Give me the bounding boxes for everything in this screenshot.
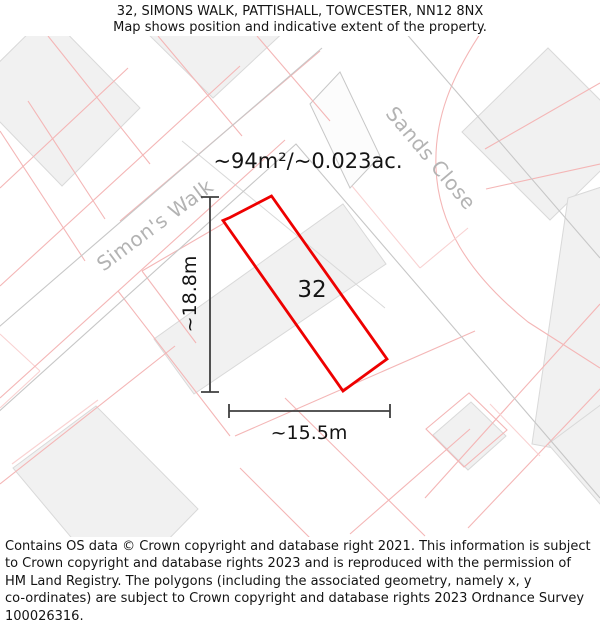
copyright-line: co-ordinates) are subject to Crown copyr… — [5, 590, 597, 607]
width-dimension-label: ~15.5m — [271, 422, 348, 444]
map-canvas: Simon's Walk Sands Close ~94m²/~0.023ac.… — [0, 36, 600, 537]
plot-number-label: 32 — [297, 277, 326, 303]
height-dimension-label: ~18.8m — [179, 256, 201, 333]
copyright-notice: Contains OS data © Crown copyright and d… — [0, 537, 600, 625]
copyright-line: to Crown copyright and database rights 2… — [5, 555, 597, 572]
copyright-line: HM Land Registry. The polygons (includin… — [5, 573, 597, 590]
copyright-line: 100026316. — [5, 608, 597, 625]
page-title: 32, SIMONS WALK, PATTISHALL, TOWCESTER, … — [0, 0, 600, 20]
header: 32, SIMONS WALK, PATTISHALL, TOWCESTER, … — [0, 0, 600, 36]
property-map-page: 32, SIMONS WALK, PATTISHALL, TOWCESTER, … — [0, 0, 600, 625]
area-label: ~94m²/~0.023ac. — [213, 149, 402, 173]
page-subtitle: Map shows position and indicative extent… — [0, 20, 600, 36]
copyright-line: Contains OS data © Crown copyright and d… — [5, 538, 597, 555]
